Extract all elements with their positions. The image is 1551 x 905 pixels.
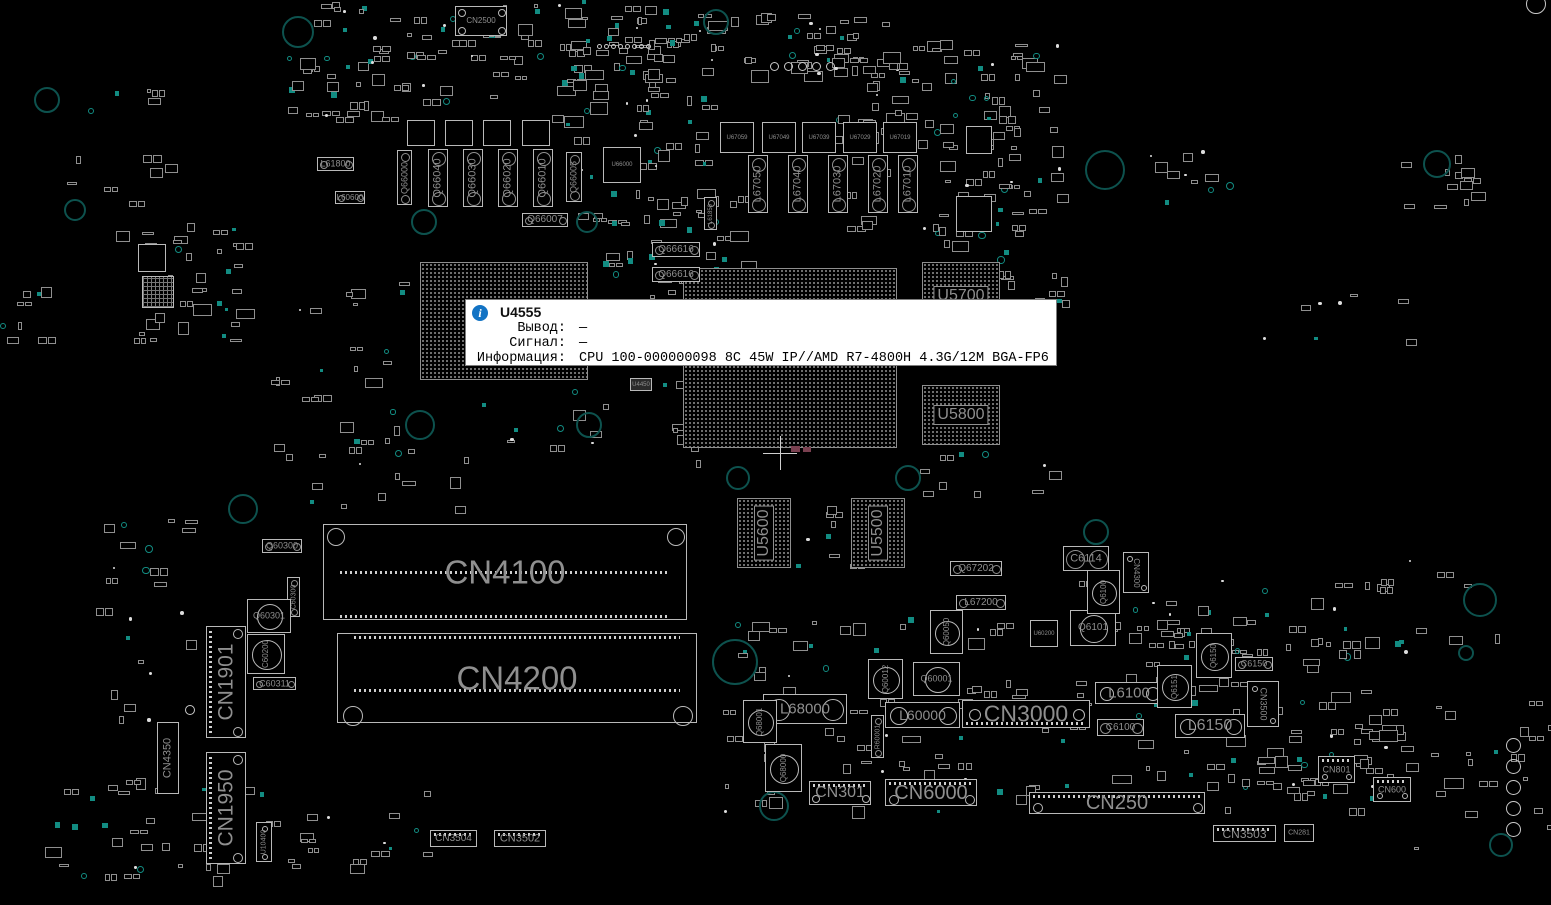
part bbox=[987, 117, 991, 121]
part bbox=[738, 196, 744, 203]
part bbox=[1434, 205, 1447, 208]
part bbox=[320, 369, 324, 373]
part bbox=[45, 847, 62, 859]
pad-circle bbox=[1201, 643, 1229, 671]
pad-circle bbox=[502, 192, 516, 206]
part bbox=[468, 40, 476, 46]
part bbox=[793, 641, 808, 651]
part bbox=[384, 349, 389, 354]
component-CN3000[interactable]: CN3000 bbox=[962, 700, 1090, 728]
part bbox=[124, 874, 131, 878]
part bbox=[1015, 44, 1028, 47]
component-L67200[interactable]: L67200 bbox=[956, 595, 1006, 610]
pad-circle bbox=[291, 580, 298, 587]
component-Q66040[interactable]: Q66040 bbox=[428, 149, 448, 207]
component-CN3502[interactable]: CN3502 bbox=[494, 830, 546, 847]
part bbox=[918, 140, 928, 149]
part bbox=[850, 710, 858, 714]
part bbox=[331, 92, 337, 98]
part bbox=[612, 221, 617, 226]
part bbox=[427, 55, 436, 60]
via-hole bbox=[604, 44, 609, 49]
component-Q6101[interactable]: Q6101 bbox=[1070, 610, 1116, 646]
part bbox=[307, 814, 317, 821]
component-Q60300[interactable]: Q60300 bbox=[262, 539, 302, 553]
component-ic[interactable] bbox=[138, 244, 166, 272]
part bbox=[0, 323, 6, 329]
component-CN801[interactable]: CN801 bbox=[1318, 756, 1355, 783]
component-U5500[interactable]: U5500 bbox=[851, 498, 905, 568]
component-CN3504[interactable]: CN3504 bbox=[430, 830, 477, 847]
part bbox=[500, 56, 507, 60]
part bbox=[193, 304, 212, 316]
part bbox=[180, 301, 186, 308]
part bbox=[1184, 750, 1189, 754]
pad-circle bbox=[1270, 718, 1276, 724]
part bbox=[1033, 53, 1039, 59]
part bbox=[583, 47, 590, 55]
via-hole bbox=[784, 62, 793, 71]
part bbox=[1275, 756, 1288, 768]
component-CN4350[interactable]: CN4350 bbox=[157, 722, 179, 794]
part bbox=[1240, 650, 1247, 654]
part bbox=[1008, 281, 1015, 290]
component-L67040[interactable]: L67040 bbox=[788, 155, 808, 213]
pad-circle bbox=[357, 195, 364, 202]
part bbox=[1416, 628, 1427, 634]
part bbox=[1333, 607, 1337, 611]
part bbox=[1029, 209, 1038, 214]
part bbox=[853, 33, 859, 39]
component-Q67202[interactable]: Q67202 bbox=[950, 561, 1002, 576]
part bbox=[1301, 305, 1311, 312]
part bbox=[711, 105, 718, 110]
part bbox=[1054, 75, 1067, 84]
pin-row bbox=[1322, 759, 1351, 762]
part bbox=[940, 455, 946, 461]
pad-circle bbox=[256, 681, 263, 688]
part bbox=[313, 113, 319, 117]
part bbox=[754, 672, 766, 681]
part bbox=[1219, 678, 1228, 686]
component-Q66616[interactable]: Q66616 bbox=[652, 242, 700, 257]
part bbox=[906, 113, 918, 121]
part bbox=[145, 545, 153, 553]
pad-circle bbox=[792, 158, 806, 172]
part bbox=[1479, 781, 1488, 787]
part bbox=[346, 65, 350, 69]
part bbox=[558, 445, 565, 452]
part bbox=[885, 734, 888, 737]
part bbox=[1302, 793, 1309, 801]
component-ic[interactable] bbox=[445, 120, 473, 146]
part bbox=[826, 26, 836, 35]
part bbox=[940, 124, 954, 134]
part bbox=[147, 89, 151, 93]
part bbox=[334, 7, 341, 12]
part bbox=[1079, 581, 1085, 587]
part bbox=[590, 102, 609, 115]
part bbox=[1311, 639, 1319, 647]
part bbox=[1184, 655, 1189, 660]
component-Q60012[interactable]: Q60012 bbox=[868, 659, 903, 699]
part bbox=[699, 30, 701, 32]
component-L60000[interactable]: L60000 bbox=[885, 702, 960, 728]
component-U67059[interactable]: U67059 bbox=[720, 122, 754, 153]
pad-circle bbox=[872, 198, 886, 212]
component-C60200[interactable]: C60200 bbox=[247, 634, 285, 674]
part bbox=[535, 9, 540, 14]
pin-row bbox=[354, 636, 680, 639]
part bbox=[997, 629, 1003, 636]
part bbox=[395, 450, 402, 457]
part bbox=[1006, 623, 1014, 629]
component-U67019[interactable]: U67019 bbox=[883, 122, 917, 153]
ref-label: U67019 bbox=[889, 135, 910, 141]
part bbox=[1323, 794, 1328, 799]
part bbox=[102, 823, 108, 829]
component-Q60301[interactable]: Q60301 bbox=[247, 599, 291, 633]
part bbox=[636, 27, 638, 29]
component-U10400[interactable]: U10400 bbox=[256, 822, 272, 862]
part bbox=[637, 105, 643, 111]
part bbox=[998, 158, 1003, 167]
part bbox=[860, 58, 869, 63]
pin-row bbox=[340, 615, 670, 618]
part bbox=[1052, 146, 1064, 158]
pad-circle bbox=[401, 153, 410, 162]
component-Q66030[interactable]: Q66030 bbox=[463, 149, 483, 207]
component-L61800[interactable]: L61800 bbox=[317, 157, 354, 171]
part bbox=[1326, 642, 1331, 646]
component-CN600[interactable]: CN600 bbox=[1373, 777, 1411, 802]
pad-circle bbox=[992, 565, 1001, 574]
pad-circle bbox=[752, 198, 766, 212]
part bbox=[150, 568, 158, 576]
part bbox=[382, 117, 390, 122]
part bbox=[1169, 613, 1172, 616]
component-CN301[interactable]: CN301 bbox=[809, 781, 871, 805]
component-U5800[interactable]: U5800 bbox=[922, 385, 1000, 445]
component-U66000[interactable]: U66000 bbox=[603, 147, 641, 183]
part bbox=[346, 292, 354, 296]
component-U4450[interactable]: U4450 bbox=[630, 378, 652, 391]
component-CN2500[interactable]: CN2500 bbox=[455, 6, 507, 36]
ref-label: L67200 bbox=[964, 598, 997, 608]
part bbox=[1175, 644, 1185, 649]
ref-label: CN281 bbox=[1288, 830, 1310, 837]
component-CN4100[interactable]: CN4100 bbox=[323, 524, 687, 620]
part bbox=[1187, 632, 1191, 636]
part bbox=[1150, 155, 1152, 157]
component-Q68000[interactable]: Q68000 bbox=[765, 744, 802, 792]
part bbox=[225, 308, 228, 311]
component-CN1901[interactable]: CN1901 bbox=[206, 626, 246, 738]
part bbox=[310, 500, 314, 504]
part bbox=[1228, 774, 1235, 783]
part bbox=[1354, 650, 1361, 660]
component-R60001[interactable]: R60001 bbox=[871, 715, 884, 758]
part bbox=[684, 34, 690, 41]
pad-circle bbox=[233, 853, 243, 863]
part bbox=[663, 55, 675, 62]
part bbox=[1289, 626, 1297, 633]
part bbox=[1446, 572, 1454, 578]
part bbox=[945, 180, 951, 183]
part bbox=[670, 40, 676, 46]
component-Q66010[interactable]: Q66010 bbox=[533, 149, 553, 207]
part bbox=[364, 101, 369, 111]
part bbox=[853, 623, 865, 636]
part bbox=[96, 608, 104, 615]
component-U67039[interactable]: U67039 bbox=[802, 122, 836, 153]
component-Q6150[interactable]: Q6150 bbox=[1196, 633, 1232, 678]
part bbox=[625, 37, 633, 43]
pad-circle bbox=[327, 528, 345, 546]
mounting-hole bbox=[1085, 150, 1125, 190]
mounting-hole bbox=[228, 494, 258, 524]
part bbox=[137, 866, 144, 873]
component-C60311[interactable]: C60311 bbox=[253, 677, 296, 690]
part bbox=[150, 168, 163, 178]
pad-circle bbox=[432, 192, 446, 206]
part bbox=[940, 40, 953, 51]
part bbox=[616, 263, 623, 267]
pin-row bbox=[966, 722, 1086, 725]
part bbox=[1331, 729, 1337, 736]
component-U67029[interactable]: U67029 bbox=[843, 122, 877, 153]
part bbox=[1157, 620, 1168, 630]
part bbox=[899, 761, 905, 766]
component-L67020[interactable]: L67020 bbox=[868, 155, 888, 213]
pin-row bbox=[889, 782, 973, 785]
pad-circle bbox=[873, 667, 900, 694]
component-C6114[interactable]: C6114 bbox=[1063, 546, 1109, 571]
part bbox=[550, 445, 557, 452]
component-L61850[interactable]: L61850 bbox=[704, 197, 717, 230]
part bbox=[146, 818, 156, 824]
component-L6100[interactable]: L6100 bbox=[1095, 682, 1163, 704]
part bbox=[573, 80, 587, 91]
part bbox=[1300, 700, 1305, 705]
component-Q66005[interactable]: Q66005 bbox=[566, 152, 582, 202]
ref-label: CN1950 bbox=[216, 769, 237, 846]
pad-circle bbox=[498, 9, 506, 17]
component-L6150[interactable]: L6150 bbox=[1175, 714, 1245, 738]
component-Q6151[interactable]: Q6151 bbox=[1157, 665, 1192, 708]
part bbox=[1184, 174, 1186, 176]
part bbox=[1289, 736, 1302, 743]
part bbox=[840, 36, 844, 40]
part bbox=[312, 483, 323, 489]
pad-circle bbox=[1066, 550, 1085, 569]
part bbox=[913, 46, 919, 51]
part bbox=[186, 253, 192, 261]
component-CN281[interactable]: CN281 bbox=[1284, 824, 1314, 842]
pad-circle bbox=[1092, 581, 1117, 606]
part bbox=[1004, 250, 1009, 255]
part bbox=[417, 55, 426, 60]
component-C6100[interactable]: C6100 bbox=[1097, 719, 1144, 736]
part bbox=[1375, 768, 1383, 773]
part bbox=[1292, 783, 1295, 786]
part bbox=[571, 66, 577, 72]
component-U67049[interactable]: U67049 bbox=[762, 122, 796, 153]
part bbox=[140, 830, 148, 834]
part bbox=[192, 288, 203, 293]
part bbox=[245, 243, 253, 250]
part bbox=[310, 308, 323, 314]
component-CN4200[interactable]: CN4200 bbox=[337, 633, 697, 723]
part bbox=[1138, 740, 1154, 749]
part bbox=[1328, 702, 1336, 710]
pad-circle bbox=[1322, 774, 1328, 780]
pad-circle bbox=[467, 192, 481, 206]
part bbox=[1205, 174, 1219, 182]
part bbox=[722, 257, 727, 262]
part bbox=[236, 243, 244, 250]
component-Q66616[interactable]: Q66616 bbox=[652, 267, 700, 282]
component-ic[interactable] bbox=[407, 120, 435, 146]
pad-circle bbox=[320, 161, 328, 169]
part bbox=[731, 17, 739, 27]
part bbox=[1398, 299, 1409, 304]
component-ic[interactable] bbox=[483, 120, 511, 146]
part bbox=[414, 828, 419, 833]
part bbox=[1157, 771, 1166, 781]
pad-circle bbox=[265, 543, 273, 551]
component-Q6100[interactable]: Q6100 bbox=[1087, 570, 1120, 614]
part bbox=[591, 442, 593, 444]
component-ic[interactable] bbox=[956, 196, 992, 232]
mounting-hole bbox=[64, 199, 86, 221]
part bbox=[350, 102, 358, 110]
ref-label: CN4350 bbox=[163, 738, 174, 778]
ref-label: CN1901 bbox=[216, 643, 237, 720]
component-Q66020[interactable]: Q66020 bbox=[498, 149, 518, 207]
pad-circle bbox=[1132, 723, 1143, 734]
part bbox=[1409, 560, 1411, 562]
part bbox=[394, 85, 401, 91]
part bbox=[1354, 739, 1361, 745]
pad-circle bbox=[708, 200, 715, 207]
part bbox=[938, 764, 950, 769]
component-C6150[interactable]: C6150 bbox=[1235, 657, 1273, 671]
part bbox=[423, 852, 433, 857]
part bbox=[1057, 194, 1069, 203]
pad-circle bbox=[537, 152, 551, 166]
part bbox=[1333, 784, 1348, 794]
part bbox=[360, 859, 366, 865]
part bbox=[560, 44, 565, 51]
part bbox=[717, 236, 724, 241]
component-L67050[interactable]: L67050 bbox=[748, 155, 768, 213]
pad-circle bbox=[432, 152, 446, 166]
component-CN4300[interactable]: CN4300 bbox=[1123, 552, 1149, 593]
part bbox=[826, 45, 835, 51]
part bbox=[1015, 74, 1020, 80]
component-CN3500[interactable]: CN3500 bbox=[1247, 681, 1279, 727]
part bbox=[999, 116, 1007, 124]
component-U5600[interactable]: U5600 bbox=[737, 498, 791, 568]
pad-circle bbox=[345, 161, 353, 169]
part bbox=[18, 322, 22, 330]
part bbox=[72, 789, 79, 795]
component-CN1950[interactable]: CN1950 bbox=[206, 752, 246, 864]
component-Q60050[interactable]: Q60050 bbox=[930, 610, 963, 654]
part bbox=[788, 675, 790, 677]
component-L67010[interactable]: L67010 bbox=[898, 155, 918, 213]
pad-circle bbox=[525, 217, 533, 225]
part bbox=[1257, 781, 1265, 786]
component-Q66000[interactable]: Q66000 bbox=[397, 150, 412, 205]
part bbox=[373, 46, 382, 52]
part bbox=[113, 567, 115, 569]
ref-label: CN2500 bbox=[466, 17, 495, 25]
part bbox=[861, 761, 872, 764]
part bbox=[1473, 178, 1481, 184]
pad-circle bbox=[498, 27, 506, 35]
part bbox=[67, 182, 77, 185]
part bbox=[850, 58, 859, 63]
ref-label: U60200 bbox=[1033, 631, 1054, 637]
part bbox=[1016, 795, 1027, 805]
part bbox=[1465, 811, 1479, 818]
component-Q68001[interactable]: Q68001 bbox=[743, 700, 777, 743]
component-CN6000[interactable]: CN6000 bbox=[885, 779, 977, 806]
component-U60200[interactable]: U60200 bbox=[1030, 620, 1058, 647]
part bbox=[1155, 162, 1168, 173]
part bbox=[25, 302, 32, 306]
part bbox=[1265, 613, 1269, 617]
component-ic[interactable] bbox=[142, 276, 174, 308]
part bbox=[353, 303, 357, 307]
part bbox=[959, 452, 964, 457]
ref-label: CN801 bbox=[1322, 765, 1350, 774]
component-ic[interactable] bbox=[966, 126, 992, 154]
part bbox=[314, 20, 322, 27]
board-canvas[interactable]: i U4555 Вывод:— Сигнал:— Информация:CPU … bbox=[0, 0, 1551, 905]
part bbox=[350, 864, 365, 874]
component-CN3503[interactable]: CN3503 bbox=[1213, 825, 1276, 842]
pad-circle bbox=[1033, 803, 1043, 813]
component-CN250[interactable]: CN250 bbox=[1029, 792, 1205, 814]
via-hole bbox=[1506, 759, 1521, 774]
part bbox=[327, 74, 336, 79]
pad-circle bbox=[458, 27, 466, 35]
part bbox=[155, 313, 165, 323]
ref-label: Q67202 bbox=[958, 564, 994, 574]
part bbox=[423, 99, 432, 106]
pad-circle bbox=[1100, 687, 1114, 701]
part bbox=[1331, 692, 1351, 702]
part bbox=[400, 290, 405, 295]
component-Q66007[interactable]: Q66007 bbox=[522, 213, 568, 227]
part bbox=[510, 438, 513, 441]
pad-circle bbox=[996, 599, 1005, 608]
part bbox=[978, 66, 983, 71]
component-ic[interactable] bbox=[522, 120, 550, 146]
component-L67030[interactable]: L67030 bbox=[828, 155, 848, 213]
part bbox=[1431, 753, 1439, 758]
part bbox=[1065, 784, 1069, 788]
part bbox=[752, 622, 771, 632]
component-L60600[interactable]: L60600 bbox=[335, 191, 365, 204]
component-Q60001[interactable]: Q60001 bbox=[913, 662, 960, 696]
part bbox=[919, 46, 925, 51]
part bbox=[1383, 709, 1390, 715]
part bbox=[324, 56, 329, 61]
